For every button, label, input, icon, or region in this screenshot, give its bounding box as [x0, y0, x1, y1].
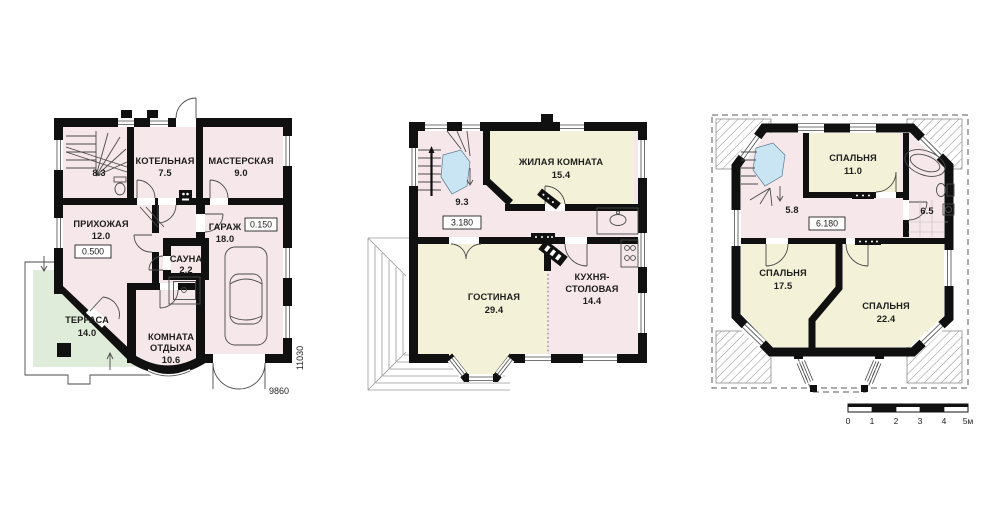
svg-text:29.4: 29.4: [485, 305, 504, 315]
room-label-sauna: САУНА: [170, 254, 203, 264]
room-label-living: ЖИЛАЯ КОМНАТА: [518, 157, 603, 167]
room-label-kitchen: КУХНЯ-: [575, 272, 610, 282]
svg-text:0: 0: [846, 416, 851, 426]
svg-text:22.4: 22.4: [877, 314, 896, 324]
svg-text:1: 1: [870, 416, 875, 426]
floor-plans-sheet: 8.3 КОТЕЛЬНАЯ 7.5 МАСТЕРСКАЯ 9.0 ПРИХОЖА…: [0, 0, 1000, 530]
room-label-bedroom-large: СПАЛЬНЯ: [862, 301, 910, 311]
room-label-boiler: КОТЕЛЬНАЯ: [135, 156, 194, 166]
svg-text:10.6: 10.6: [162, 355, 181, 365]
radiator-icon: [852, 192, 874, 199]
plan-second-floor: СПАЛЬНЯ 11.0 6.5 5.8 6.180 СПАЛЬНЯ 17.5 …: [712, 115, 968, 392]
svg-text:15.4: 15.4: [552, 170, 571, 180]
room-label-workshop: МАСТЕРСКАЯ: [208, 156, 274, 166]
svg-text:0.500: 0.500: [82, 247, 104, 257]
svg-text:0.150: 0.150: [250, 220, 272, 230]
radiator-icon: [531, 233, 555, 241]
room-label-bedroom-small: СПАЛЬНЯ: [829, 153, 877, 163]
svg-text:14.4: 14.4: [583, 296, 602, 306]
stairs-area: 9.3: [455, 197, 468, 207]
boiler-icon: [179, 190, 192, 203]
room-label-lounge: ГОСТИНАЯ: [468, 292, 520, 302]
svg-text:2: 2: [894, 416, 899, 426]
svg-text:6.180: 6.180: [816, 219, 838, 229]
room-label-garage: ГАРАЖ: [209, 222, 242, 232]
room-label-bedroom-mid: СПАЛЬНЯ: [759, 268, 807, 278]
bay-roof-outline: [797, 356, 881, 392]
svg-text:3.180: 3.180: [451, 218, 473, 228]
svg-text:7.5: 7.5: [158, 168, 171, 178]
svg-text:2.2: 2.2: [179, 265, 192, 275]
bathroom-area: 6.5: [920, 206, 933, 216]
svg-text:ОТДЫХА: ОТДЫХА: [150, 343, 192, 353]
svg-text:11.0: 11.0: [844, 166, 862, 176]
stairs-area: 8.3: [92, 168, 105, 178]
svg-text:12.0: 12.0: [92, 231, 111, 241]
svg-text:18.0: 18.0: [216, 234, 235, 244]
dimension-width: 9860: [269, 386, 289, 396]
plan-ground-floor: 8.3 КОТЕЛЬНАЯ 7.5 МАСТЕРСКАЯ 9.0 ПРИХОЖА…: [25, 98, 305, 396]
svg-text:17.5: 17.5: [774, 281, 793, 291]
svg-text:14.0: 14.0: [78, 328, 97, 338]
plan-first-floor: 9.3 3.180 ЖИЛАЯ КОМНАТА 15.4 ГОСТИНАЯ 29…: [368, 114, 647, 390]
dimension-height: 11030: [295, 346, 305, 370]
svg-text:5м: 5м: [963, 416, 974, 426]
room-label-lounge: КОМНАТА: [148, 332, 194, 342]
radiator-icon: [855, 238, 881, 245]
terrace-column: [57, 343, 71, 357]
scale-bar: 0 1 2 3 4 5м: [846, 404, 974, 426]
hall-area: 5.8: [785, 205, 798, 215]
svg-text:9.0: 9.0: [234, 168, 247, 178]
svg-text:3: 3: [918, 416, 923, 426]
svg-text:СТОЛОВАЯ: СТОЛОВАЯ: [565, 284, 618, 294]
room-label-hallway: ПРИХОЖАЯ: [73, 219, 128, 229]
entry-arrow-down-icon: [41, 256, 47, 271]
floor-plans-drawing: 8.3 КОТЕЛЬНАЯ 7.5 МАСТЕРСКАЯ 9.0 ПРИХОЖА…: [0, 0, 1000, 530]
room-label-terrace: ТЕРРАСА: [65, 315, 109, 325]
svg-text:4: 4: [942, 416, 947, 426]
